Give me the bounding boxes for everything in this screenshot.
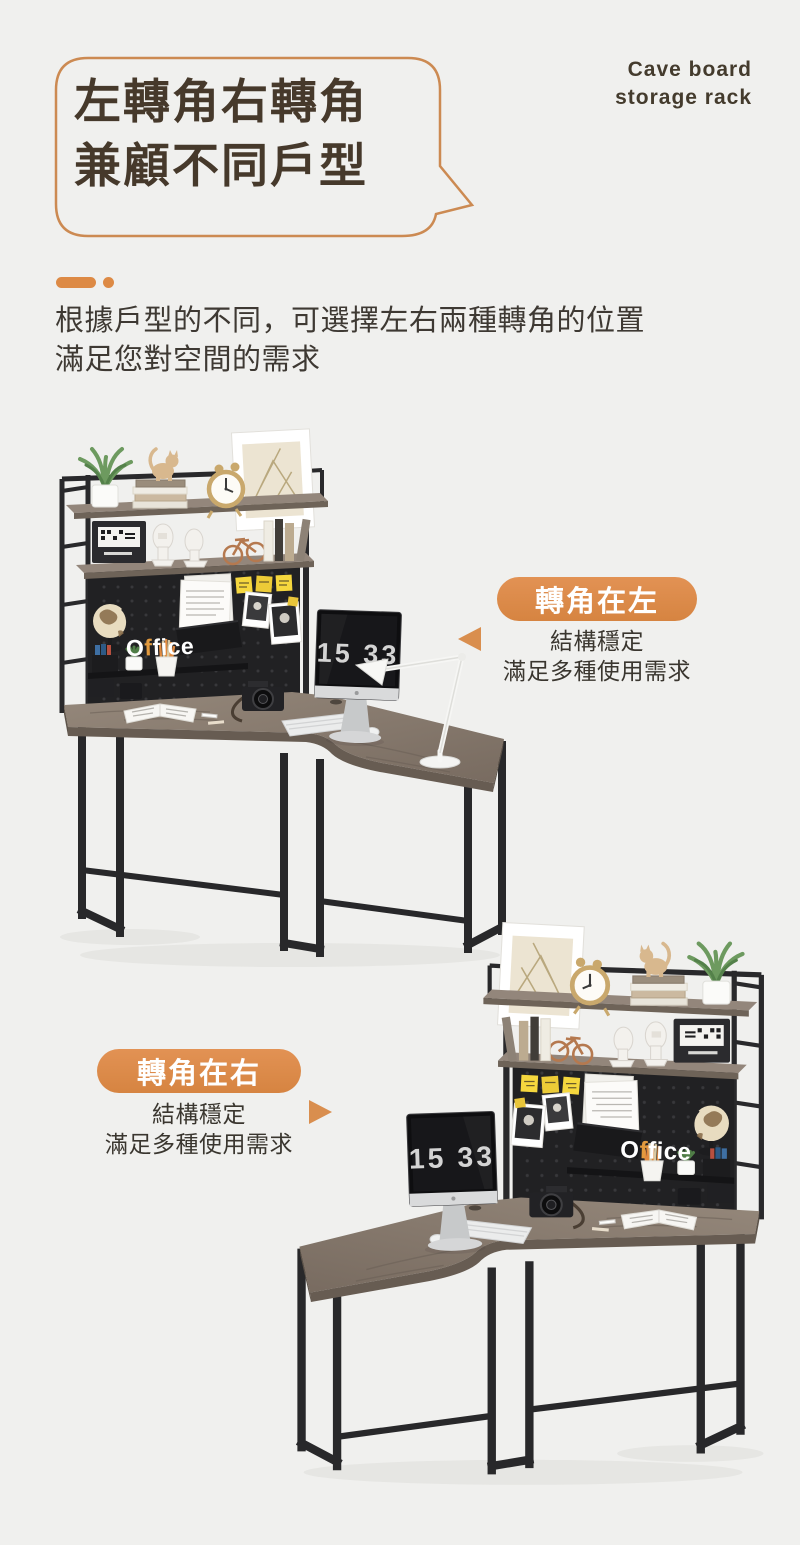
corner-left-desc-line1: 結構穩定 [497, 626, 697, 656]
divider-bar [56, 277, 96, 288]
desk-image-corner-left: 15 33 Office [30, 415, 510, 970]
intro-text: 根據戶型的不同，可選擇左右兩種轉角的位置 滿足您對空間的需求 [55, 302, 645, 380]
intro-line1: 根據戶型的不同，可選擇左右兩種轉角的位置 [55, 302, 645, 341]
office-o: O [620, 1136, 640, 1164]
arrow-left-icon [458, 627, 481, 651]
office-o: O [126, 635, 145, 662]
office-rest: fice [648, 1137, 692, 1166]
corner-right-desc-line2: 滿足多種使用需求 [97, 1129, 301, 1159]
office-rest: fice [152, 633, 195, 660]
corner-left-desc-line2: 滿足多種使用需求 [497, 656, 697, 686]
desk-lamp [356, 653, 466, 768]
office-f: f [144, 634, 153, 660]
desk-scene [60, 429, 504, 967]
corner-left-badge: 轉角在左 [497, 577, 697, 621]
desk-scene-mirrored [299, 922, 763, 1484]
tagline-line2: storage rack [615, 84, 752, 112]
monitor-clock-text: 15 33 [408, 1140, 495, 1175]
corner-right-desc-line1: 結構穩定 [97, 1099, 301, 1129]
page-title-line2: 兼顧不同戶型 [74, 134, 368, 198]
divider-dot [103, 277, 114, 288]
desk-illustration-corner-left: 15 33 Office [30, 415, 510, 970]
desk-image-corner-right: 15 33 Office [293, 908, 795, 1488]
office-f: f [639, 1137, 649, 1164]
tagline: Cave board storage rack [615, 56, 752, 112]
desk-illustration-corner-right: 15 33 Office [293, 908, 795, 1488]
monitor-clock-text: 15 33 [316, 638, 400, 671]
arrow-right-icon [309, 1100, 332, 1124]
pegboard-office-text: Office [126, 633, 195, 661]
corner-right-desc: 結構穩定 滿足多種使用需求 [97, 1099, 301, 1159]
product-promo-page: 左轉角右轉角 兼顧不同戶型 Cave board storage rack 根據… [0, 0, 800, 1545]
page-title: 左轉角右轉角 兼顧不同戶型 [74, 70, 368, 198]
corner-right-badge: 轉角在右 [97, 1049, 301, 1093]
corner-left-desc: 結構穩定 滿足多種使用需求 [497, 626, 697, 686]
intro-line2: 滿足您對空間的需求 [55, 341, 645, 380]
page-title-line1: 左轉角右轉角 [74, 70, 368, 134]
tagline-line1: Cave board [615, 56, 752, 84]
pegboard-office-text: Office [620, 1136, 692, 1165]
